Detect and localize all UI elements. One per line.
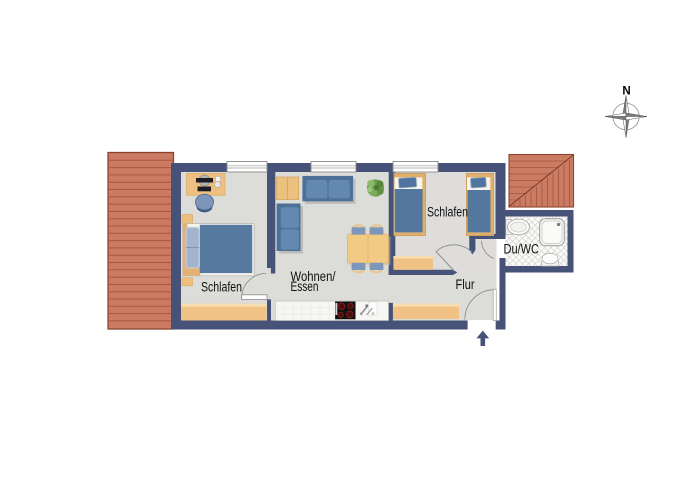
svg-text:N: N	[622, 86, 630, 98]
svg-text:Essen: Essen	[291, 279, 319, 294]
svg-text:Flur: Flur	[456, 277, 475, 292]
svg-text:Schlafen: Schlafen	[427, 204, 468, 219]
svg-text:Schlafen: Schlafen	[201, 279, 242, 294]
svg-text:Du/WC: Du/WC	[504, 242, 540, 257]
